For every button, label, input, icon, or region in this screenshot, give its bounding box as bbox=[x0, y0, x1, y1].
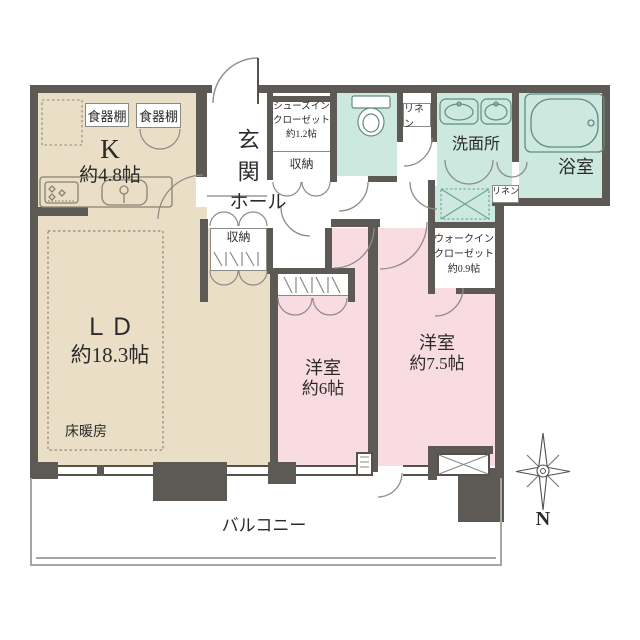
wall-right-upper bbox=[602, 85, 610, 206]
wall-kitchen-entrance bbox=[196, 92, 207, 177]
compass-icon bbox=[516, 433, 570, 510]
vent-box bbox=[356, 452, 373, 476]
hall-storage-label: 収納 bbox=[212, 231, 265, 245]
ld-window-right bbox=[227, 465, 268, 476]
wall-bedrooms-divider bbox=[368, 219, 378, 472]
wall-right-lower bbox=[495, 198, 504, 472]
wall-ld-bedroom6 bbox=[270, 268, 278, 472]
wall-kitchen-stub bbox=[38, 207, 88, 216]
wall-washroom-bath bbox=[512, 85, 519, 162]
wall-left bbox=[30, 85, 38, 478]
cupboard-left-box: 食器棚 bbox=[85, 103, 129, 127]
window-mullion bbox=[97, 465, 104, 476]
living-dining-label: ＬＤ 約18.3帖 bbox=[45, 315, 175, 367]
ps-box bbox=[437, 453, 490, 476]
wall-closet-nub bbox=[348, 268, 355, 302]
cupboard-left-label: 食器棚 bbox=[87, 106, 126, 125]
compass-north-label: N bbox=[531, 508, 555, 531]
linen-approach-floor bbox=[403, 140, 431, 180]
linen-top-box: リネン bbox=[403, 103, 431, 127]
balcony-inner-line bbox=[36, 557, 496, 559]
walk-in-closet-label: ウォークイン クローゼット 約0.9帖 bbox=[432, 232, 496, 277]
bedroom-7-5-label: 洋室 約7.5帖 bbox=[392, 333, 482, 373]
wall-nook-left bbox=[267, 228, 273, 268]
washroom-label: 洗面所 bbox=[440, 136, 512, 154]
wall-linen-washroom bbox=[431, 85, 437, 142]
hall-nook-floor bbox=[273, 228, 325, 268]
bedroom7-window bbox=[403, 465, 428, 476]
wall-wic-bottom bbox=[456, 288, 495, 294]
kitchen-label: K 約4.8帖 bbox=[60, 134, 160, 187]
wall-nook-bottom bbox=[267, 268, 355, 274]
wall-wic-top bbox=[435, 222, 495, 228]
wall-toilet-bottom bbox=[368, 176, 397, 182]
pillar-balcony-left bbox=[30, 462, 58, 479]
wall-closet-column bbox=[200, 219, 208, 302]
hall-label: ホール bbox=[222, 192, 294, 214]
bedroom-6-label: 洋室 約6帖 bbox=[283, 358, 363, 398]
wall-nook-notch bbox=[325, 228, 332, 268]
wall-ps-frame-left bbox=[428, 446, 437, 480]
entrance-label: 玄関 bbox=[232, 118, 262, 202]
floor-plan: 食器棚 食器棚 K 約4.8帖 ＬＤ 約18.3帖 床暖房 玄関 ホール シュー… bbox=[0, 0, 640, 640]
laundry-alcove-floor bbox=[435, 186, 495, 222]
shoes-in-closet-label: シューズイン クローゼット 約1.2帖 bbox=[273, 101, 330, 142]
linen-side-label: リネン bbox=[492, 186, 519, 196]
balcony-label: バルコニー bbox=[209, 516, 319, 536]
bedroom6-closet-floor bbox=[278, 272, 348, 296]
cupboard-right-label: 食器棚 bbox=[139, 106, 178, 125]
storage-under-sic-label: 収納 bbox=[273, 158, 330, 172]
bathroom-label: 浴室 bbox=[545, 157, 607, 178]
bathroom-floor bbox=[519, 92, 603, 198]
wall-top-left bbox=[30, 85, 212, 93]
cupboard-right-box: 食器棚 bbox=[136, 103, 181, 128]
wall-sic-toilet bbox=[330, 85, 337, 182]
floor-heating-label: 床暖房 bbox=[55, 425, 117, 441]
toilet-floor bbox=[337, 92, 397, 176]
